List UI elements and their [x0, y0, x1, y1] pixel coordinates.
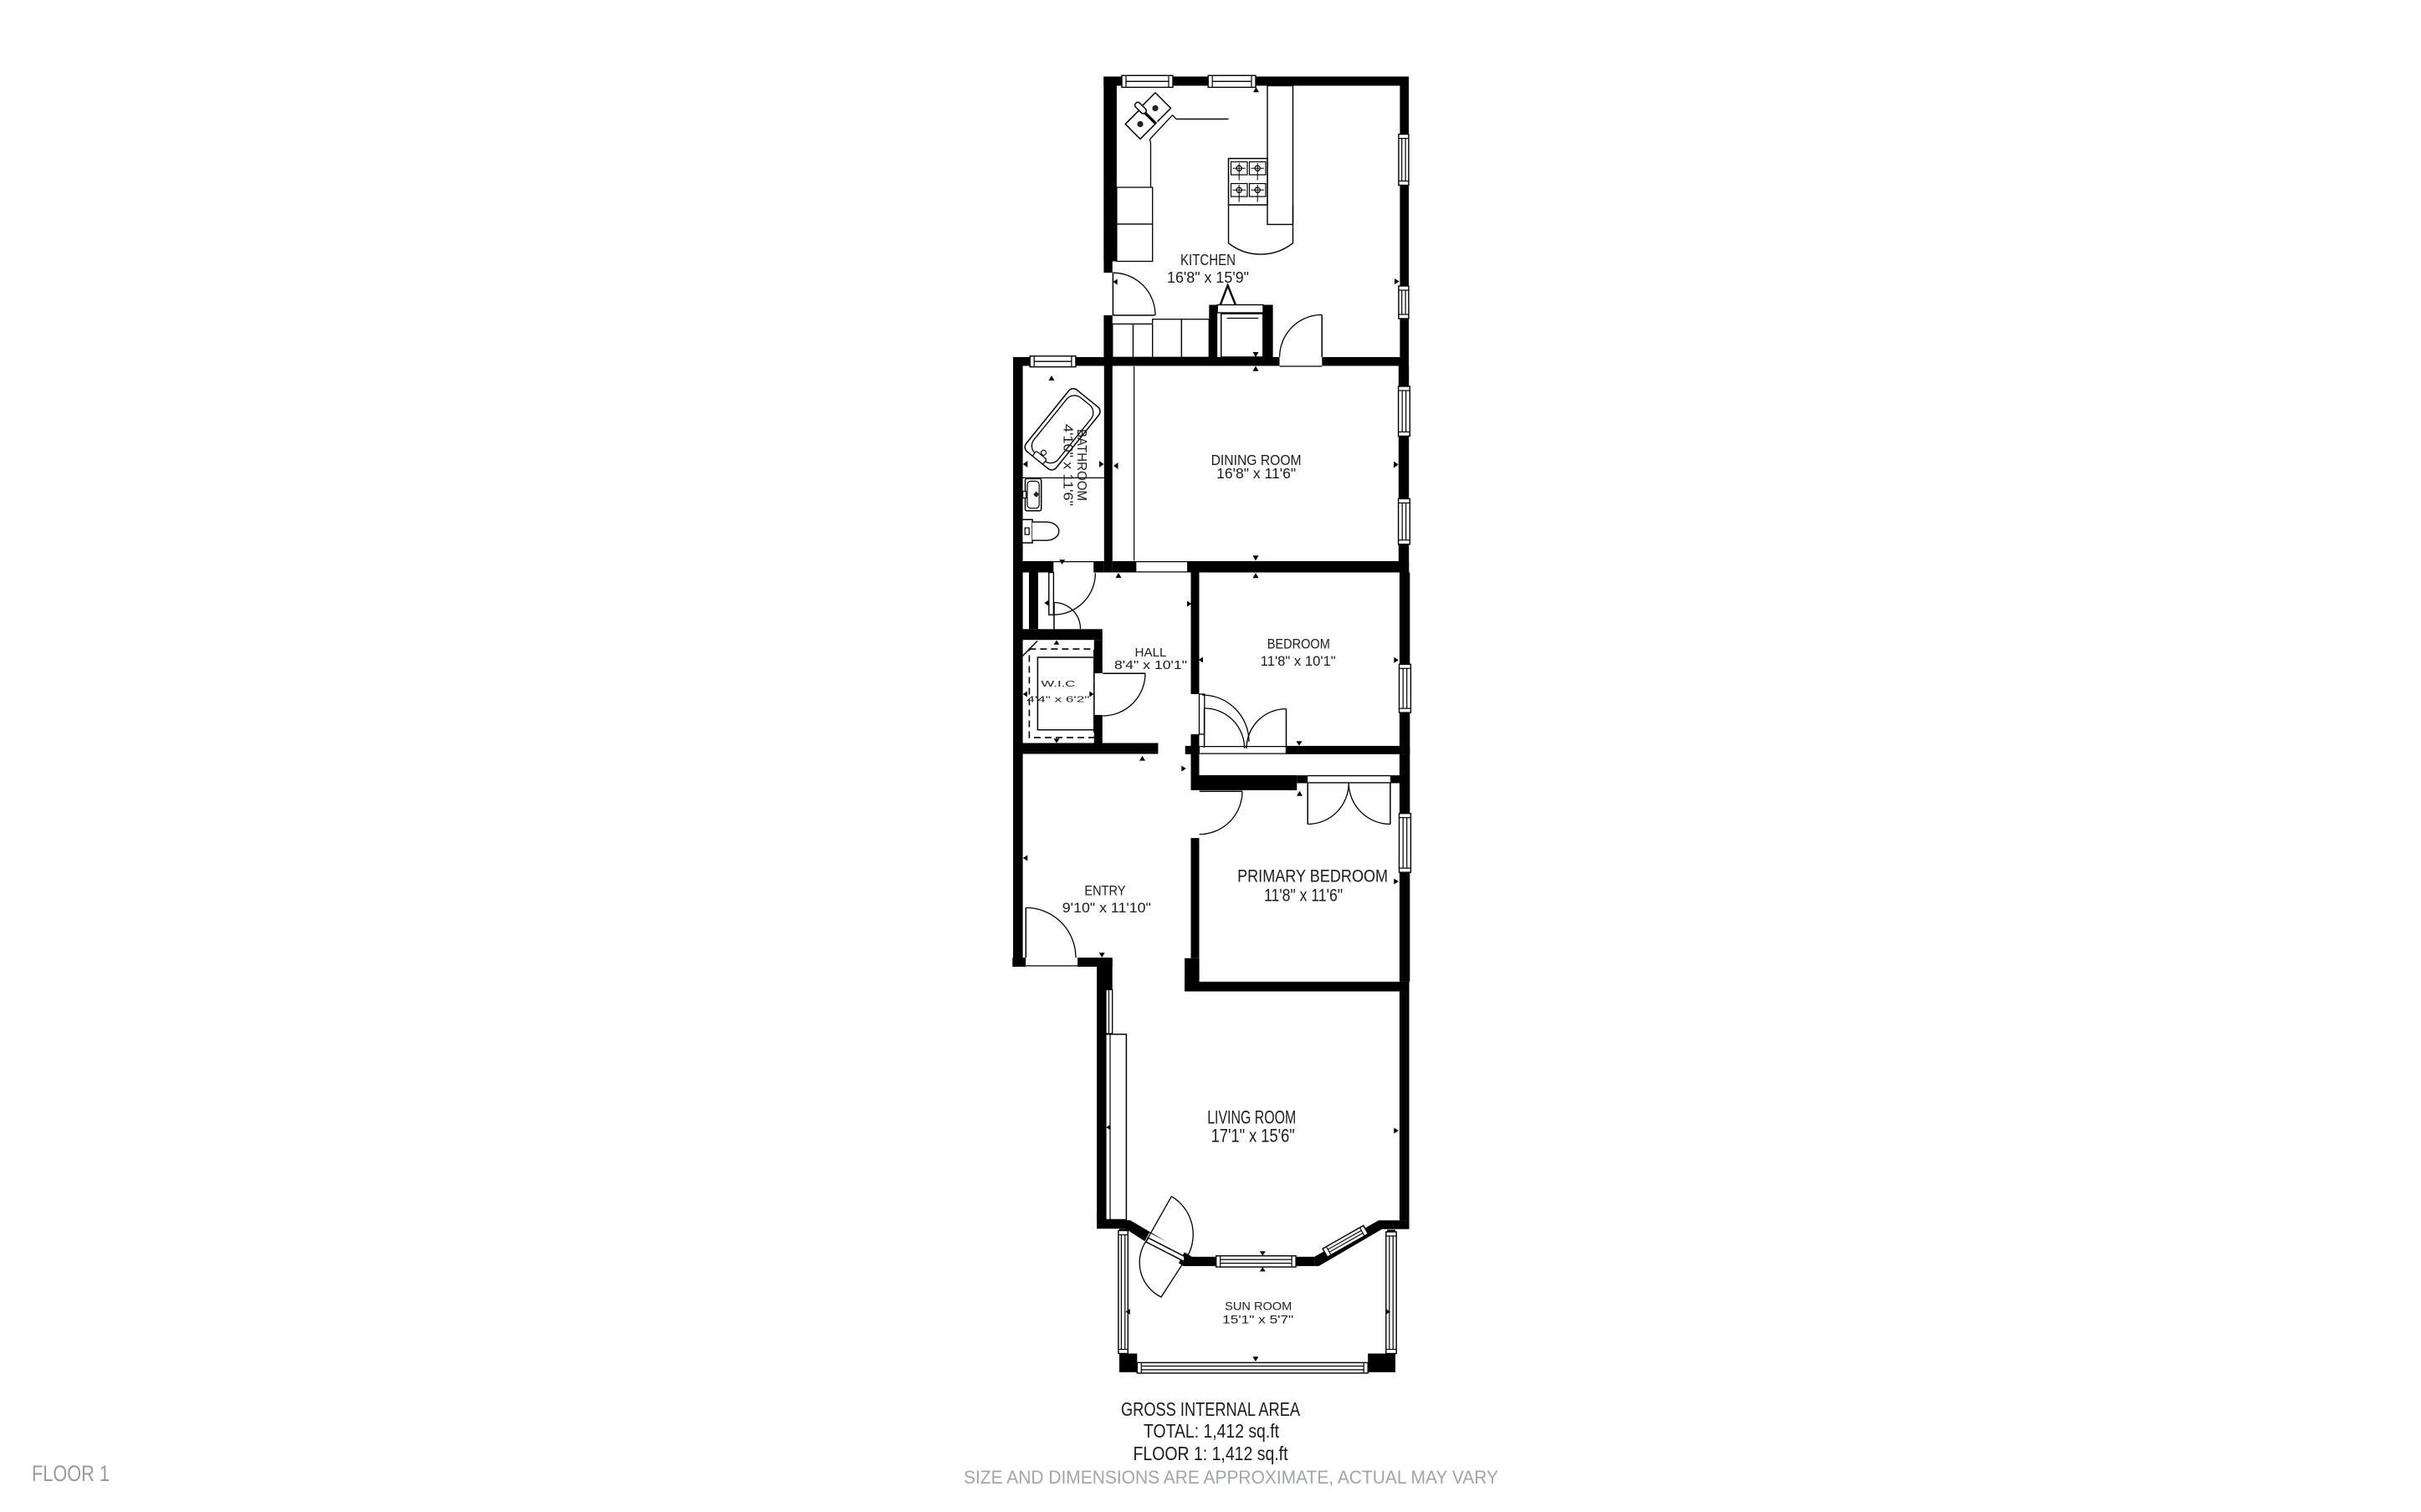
svg-text:HALL: HALL — [1135, 646, 1167, 660]
svg-text:11'8" x 11'6": 11'8" x 11'6" — [1264, 885, 1343, 905]
svg-text:SIZE AND DIMENSIONS ARE APPROX: SIZE AND DIMENSIONS ARE APPROXIMATE, ACT… — [964, 1467, 1498, 1488]
svg-text:KITCHEN: KITCHEN — [1180, 252, 1236, 268]
svg-text:9'10" x 11'10": 9'10" x 11'10" — [1062, 901, 1151, 916]
svg-text:BEDROOM: BEDROOM — [1267, 636, 1330, 651]
svg-text:17'1" x 15'6": 17'1" x 15'6" — [1211, 1126, 1295, 1147]
svg-text:15'1" x 5'7": 15'1" x 5'7" — [1222, 1312, 1293, 1326]
svg-text:PRIMARY BEDROOM: PRIMARY BEDROOM — [1237, 866, 1388, 886]
svg-text:GROSS INTERNAL AREA: GROSS INTERNAL AREA — [1121, 1398, 1301, 1420]
svg-text:4'4" x 6'2": 4'4" x 6'2" — [1026, 694, 1089, 704]
svg-text:16'8" x 15'9": 16'8" x 15'9" — [1167, 269, 1249, 286]
svg-text:11'8" x 10'1": 11'8" x 10'1" — [1261, 654, 1336, 669]
svg-text:16'8" x 11'6": 16'8" x 11'6" — [1216, 465, 1296, 482]
svg-text:FLOOR 1: FLOOR 1 — [32, 1461, 110, 1486]
svg-text:SUN ROOM: SUN ROOM — [1225, 1300, 1292, 1313]
svg-text:TOTAL: 1,412 sq.ft: TOTAL: 1,412 sq.ft — [1144, 1420, 1280, 1442]
svg-text:FLOOR 1: 1,412 sq.ft: FLOOR 1: 1,412 sq.ft — [1134, 1443, 1289, 1464]
svg-text:BATHROOM: BATHROOM — [1074, 429, 1088, 501]
svg-text:W.I.C: W.I.C — [1041, 679, 1076, 689]
svg-text:4'10" x 11'6": 4'10" x 11'6" — [1061, 424, 1075, 506]
svg-text:8'4" x 10'1": 8'4" x 10'1" — [1114, 659, 1187, 672]
svg-text:ENTRY: ENTRY — [1084, 883, 1125, 898]
